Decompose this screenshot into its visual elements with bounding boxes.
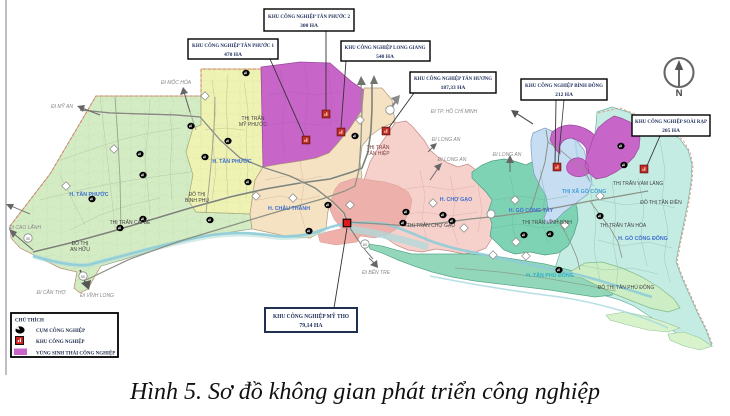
svg-text:ĐÔ THỊ: ĐÔ THỊ <box>72 240 89 247</box>
svg-text:30: 30 <box>26 236 31 241</box>
svg-text:H. TÂN PHƯỚC: H. TÂN PHƯỚC <box>212 157 251 165</box>
svg-text:ĐI CAO LÃNH: ĐI CAO LÃNH <box>9 224 41 231</box>
svg-text:KHU CÔNG NGHIỆP SOÀI RẠP: KHU CÔNG NGHIỆP SOÀI RẠP <box>635 117 708 125</box>
svg-text:TÂN HIỆP: TÂN HIỆP <box>366 149 390 157</box>
svg-text:N: N <box>676 88 683 99</box>
svg-text:ĐÔ THỊ TÂN PHÚ ĐÔNG: ĐÔ THỊ TÂN PHÚ ĐÔNG <box>598 284 655 291</box>
svg-text:THỊ TRẤN CHỢ GẠO: THỊ TRẤN CHỢ GẠO <box>407 222 455 229</box>
svg-text:H. CHÂU THÀNH: H. CHÂU THÀNH <box>268 205 310 212</box>
svg-text:KHU CÔNG NGHIỆP TÂN HƯƠNG: KHU CÔNG NGHIỆP TÂN HƯƠNG <box>414 74 493 82</box>
svg-text:540 HA: 540 HA <box>376 54 394 60</box>
svg-text:CỤM CÔNG NGHIỆP: CỤM CÔNG NGHIỆP <box>36 328 85 334</box>
svg-text:50: 50 <box>81 274 86 279</box>
svg-text:ĐÔ THỊ: ĐÔ THỊ <box>189 191 206 198</box>
svg-text:H. GÒ CÔNG TÂY: H. GÒ CÔNG TÂY <box>509 206 554 214</box>
svg-text:470 HA: 470 HA <box>224 52 242 58</box>
svg-text:ĐI LONG AN: ĐI LONG AN <box>438 157 467 163</box>
svg-text:KHU CÔNG NGHIỆP TÂN PHƯỚC 1: KHU CÔNG NGHIỆP TÂN PHƯỚC 1 <box>192 41 274 49</box>
svg-text:205 HA: 205 HA <box>662 128 680 134</box>
svg-text:ĐI VĨNH LONG: ĐI VĨNH LONG <box>80 292 114 299</box>
svg-text:ĐI CẦN THƠ: ĐI CẦN THƠ <box>36 289 66 296</box>
svg-text:KHU CÔNG NGHIỆP LONG GIANG: KHU CÔNG NGHIỆP LONG GIANG <box>345 43 427 51</box>
svg-text:AN HỮU: AN HỮU <box>70 246 90 253</box>
svg-text:79,14 HA: 79,14 HA <box>299 323 323 329</box>
svg-text:THỊ TRẤN: THỊ TRẤN <box>367 144 390 151</box>
svg-text:KHU CÔNG NGHIỆP: KHU CÔNG NGHIỆP <box>36 339 85 345</box>
svg-text:H. TÂN PHÚ ĐÔNG: H. TÂN PHÚ ĐÔNG <box>526 271 574 279</box>
svg-text:THỊ XÃ GÒ CÔNG: THỊ XÃ GÒ CÔNG <box>562 187 606 195</box>
svg-text:CHÚ THÍCH: CHÚ THÍCH <box>15 318 44 324</box>
svg-text:H. GÒ CÔNG ĐÔNG: H. GÒ CÔNG ĐÔNG <box>618 234 668 242</box>
svg-text:60: 60 <box>363 242 368 247</box>
svg-text:ĐI BẾN TRE: ĐI BẾN TRE <box>362 268 391 276</box>
svg-text:ĐI TP. HỒ CHÍ MINH: ĐI TP. HỒ CHÍ MINH <box>431 108 478 115</box>
svg-text:ĐI LONG AN: ĐI LONG AN <box>493 152 522 158</box>
svg-text:THỊ TRẤN CÁI BÈ: THỊ TRẤN CÁI BÈ <box>110 219 151 226</box>
svg-text:187,33 HA: 187,33 HA <box>441 85 466 91</box>
svg-text:KHU CÔNG NGHIỆP MỸ THO: KHU CÔNG NGHIỆP MỸ THO <box>273 312 349 320</box>
svg-text:MỸ PHƯỚC: MỸ PHƯỚC <box>239 121 267 128</box>
svg-text:VÙNG SINH THÁI CÔNG NGHIỆP: VÙNG SINH THÁI CÔNG NGHIỆP <box>36 351 115 357</box>
svg-text:ĐÔ THỊ TÂN ĐIỀN: ĐÔ THỊ TÂN ĐIỀN <box>640 199 682 206</box>
svg-text:ĐI LONG AN: ĐI LONG AN <box>432 137 461 143</box>
svg-text:KHU CÔNG NGHIỆP TÂN PHƯỚC 2: KHU CÔNG NGHIỆP TÂN PHƯỚC 2 <box>268 12 350 20</box>
svg-text:H. TÂN PHƯỚC: H. TÂN PHƯỚC <box>69 190 108 198</box>
svg-text:THỊ TRẤN: THỊ TRẤN <box>242 115 265 122</box>
svg-text:THỊ TRẤN VĨNH BÌNH: THỊ TRẤN VĨNH BÌNH <box>522 219 572 226</box>
svg-text:THỊ TRẤN VÀM LÁNG: THỊ TRẤN VÀM LÁNG <box>613 180 663 187</box>
svg-text:ĐI MỸ AN: ĐI MỸ AN <box>51 103 73 110</box>
svg-text:BÌNH PHỤ: BÌNH PHỤ <box>185 197 209 204</box>
svg-text:H. CHỢ GẠO: H. CHỢ GẠO <box>440 197 472 203</box>
svg-text:212 HA: 212 HA <box>555 92 573 98</box>
svg-text:300 HA: 300 HA <box>300 23 318 29</box>
svg-text:KHU CÔNG NGHIỆP BÌNH ĐÔNG: KHU CÔNG NGHIỆP BÌNH ĐÔNG <box>525 81 604 89</box>
svg-text:ĐI MỘC HÓA: ĐI MỘC HÓA <box>161 79 192 86</box>
svg-text:THỊ TRẤN TÂN HÒA: THỊ TRẤN TÂN HÒA <box>600 222 647 229</box>
